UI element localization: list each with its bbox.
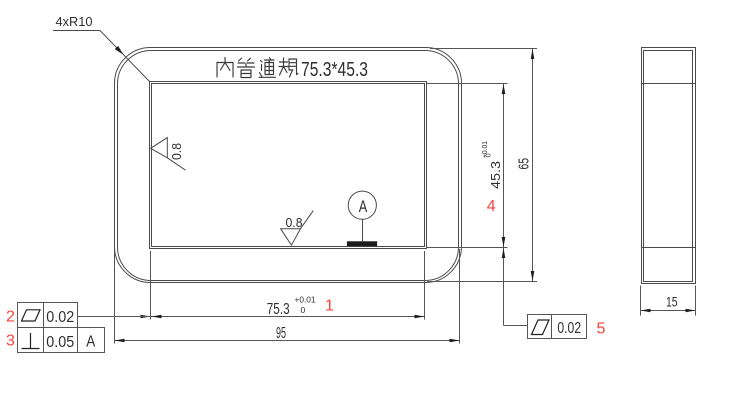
svg-text:0: 0: [301, 305, 306, 315]
svg-text:75.3*45.3: 75.3*45.3: [301, 59, 368, 81]
svg-text:0.05: 0.05: [46, 334, 74, 351]
svg-text:5: 5: [597, 320, 606, 337]
svg-text:0: 0: [484, 153, 493, 157]
svg-text:95: 95: [276, 325, 286, 342]
svg-text:15: 15: [666, 294, 678, 309]
svg-text:45.3: 45.3: [489, 161, 503, 189]
svg-text:65: 65: [516, 158, 533, 170]
svg-text:0.8: 0.8: [286, 215, 303, 230]
svg-text:+0.01: +0.01: [295, 295, 316, 305]
svg-text:75.3: 75.3: [267, 301, 290, 318]
svg-text:A: A: [359, 197, 368, 216]
svg-text:0.8: 0.8: [169, 143, 184, 160]
svg-text:4xR10: 4xR10: [56, 14, 93, 29]
svg-text:A: A: [86, 333, 95, 350]
svg-text:1: 1: [325, 298, 334, 315]
svg-text:3: 3: [6, 333, 15, 350]
svg-text:4: 4: [487, 198, 496, 215]
svg-text:0.02: 0.02: [46, 309, 74, 326]
svg-text:0.02: 0.02: [557, 320, 581, 337]
svg-text:2: 2: [6, 308, 15, 325]
